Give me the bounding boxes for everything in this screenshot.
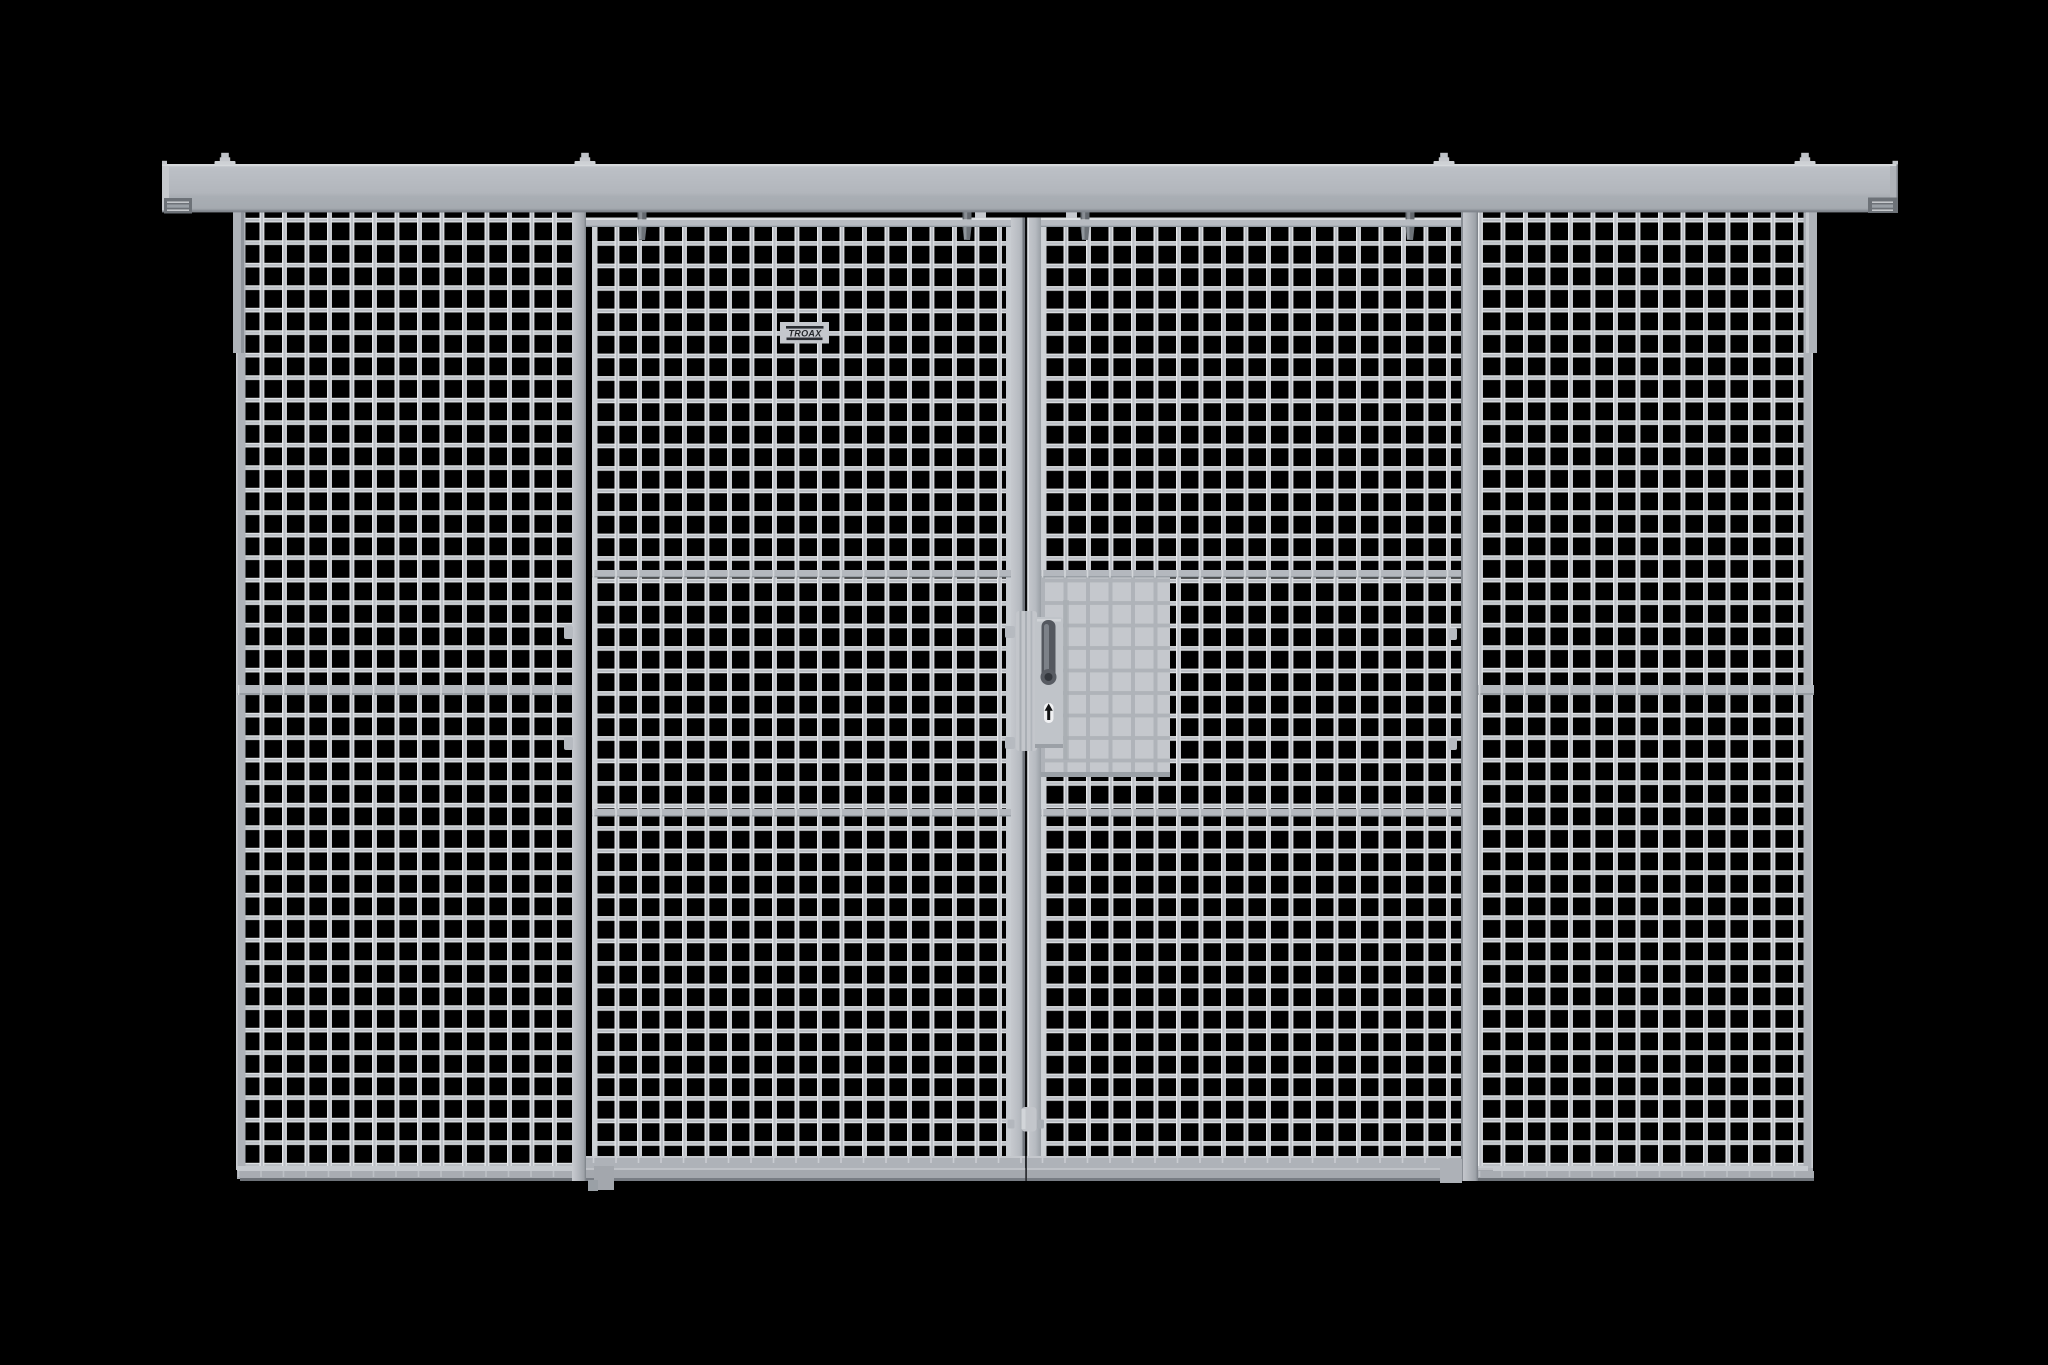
svg-text:TROAX: TROAX <box>789 329 823 339</box>
